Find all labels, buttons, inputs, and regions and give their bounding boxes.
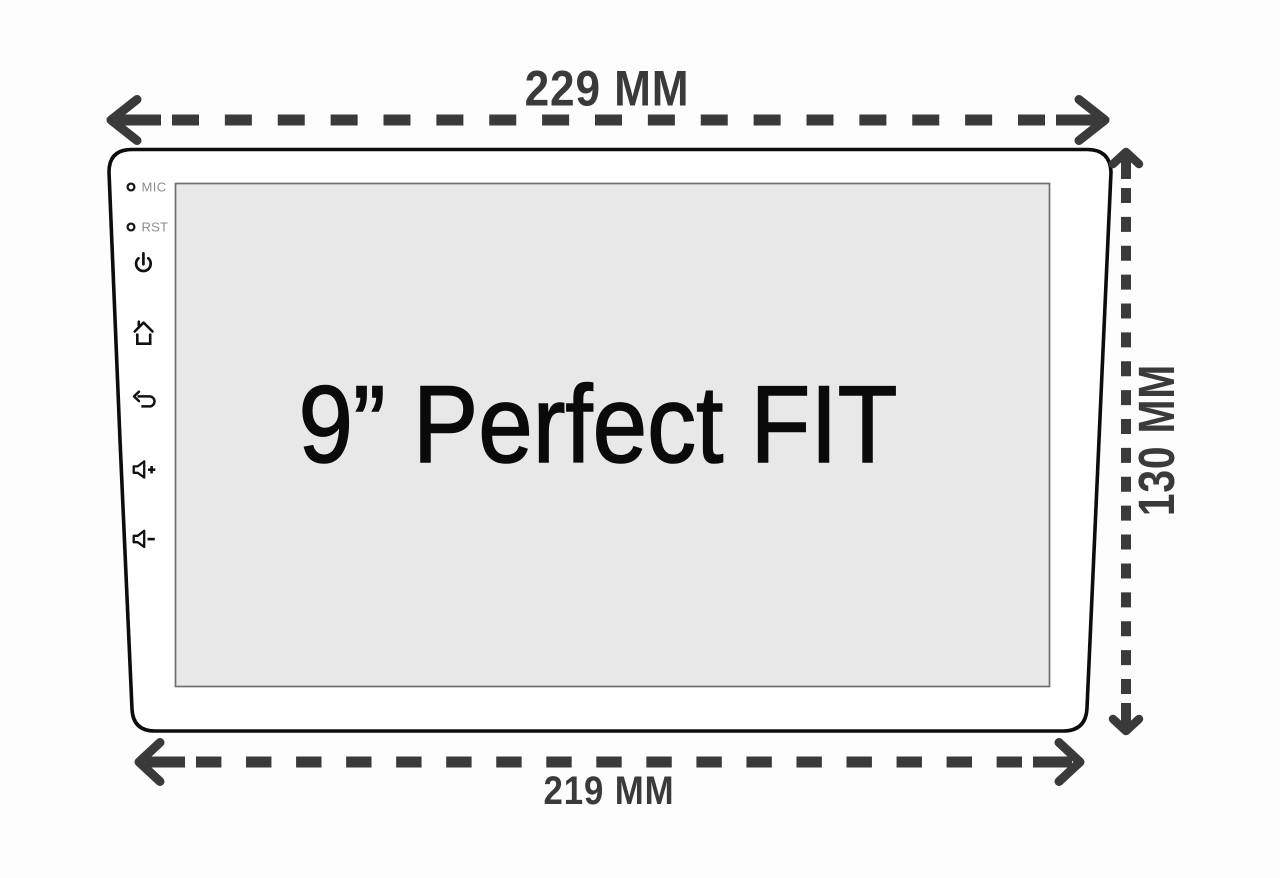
svg-text:RST: RST [142,220,169,235]
svg-text:229 MM: 229 MM [525,61,690,117]
svg-text:219 MM: 219 MM [544,768,675,813]
svg-text:9” Perfect FIT: 9” Perfect FIT [299,364,898,486]
svg-text:MIC: MIC [142,180,167,195]
svg-text:130 MM: 130 MM [1128,364,1185,516]
